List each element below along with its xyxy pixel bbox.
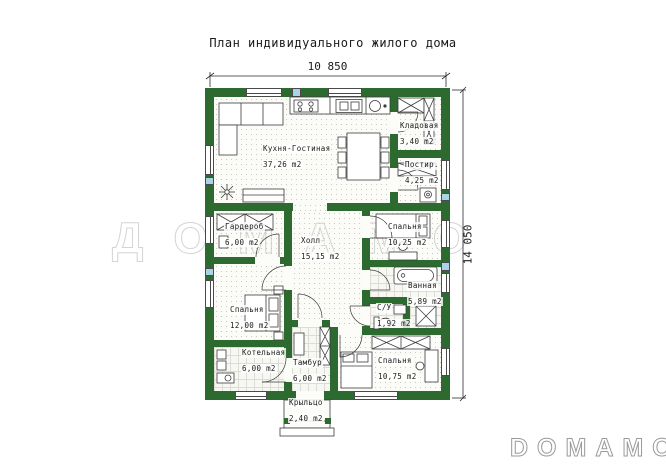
- shower: [416, 306, 436, 326]
- room-label-kitchen-living: Кухня-Гостиная37,26 m2: [262, 144, 331, 169]
- room-label-boiler-room: Котельная6,00 m2: [241, 348, 286, 373]
- kitchen-counter: [290, 97, 390, 114]
- dining-table: [338, 133, 389, 180]
- watermark-logo: DOMAMO: [510, 434, 666, 463]
- room-label-bedroom-right-bottom: Спальня10,75 m2: [377, 356, 418, 381]
- room-label-wardrobe: Гардероб6,00 m2: [224, 222, 265, 247]
- room-label-bathroom: Ванная5,89 m2: [407, 281, 443, 306]
- room-label-hall: Холл15,15 m2: [300, 236, 341, 261]
- tv-stand: [243, 189, 284, 202]
- dimension-right-label: 14 050: [462, 215, 475, 275]
- plant-icon: [219, 184, 235, 200]
- floor-plan-page: План индивидуального жилого дома 10 850 …: [0, 0, 666, 470]
- boiler-equipment: [217, 350, 234, 383]
- room-label-pantry: Кладовая3,40 m2: [399, 121, 440, 146]
- room-label-bedroom-left: Спальня12,00 m2: [229, 305, 270, 330]
- room-label-bedroom-right-top: Спальня10,25 m2: [387, 222, 428, 247]
- room-label-laundry: Постир.4,25 m2: [404, 160, 440, 185]
- dimension-top-label: 10 850: [205, 60, 450, 73]
- room-label-porch: Крыльцо2,40 m2: [288, 398, 324, 423]
- room-label-wc: С/У1,92 m2: [376, 303, 412, 328]
- page-title: План индивидуального жилого дома: [0, 36, 666, 50]
- vestibule-cabinet: [294, 333, 304, 355]
- room-label-vestibule: Тамбур6,00 m2: [292, 358, 328, 383]
